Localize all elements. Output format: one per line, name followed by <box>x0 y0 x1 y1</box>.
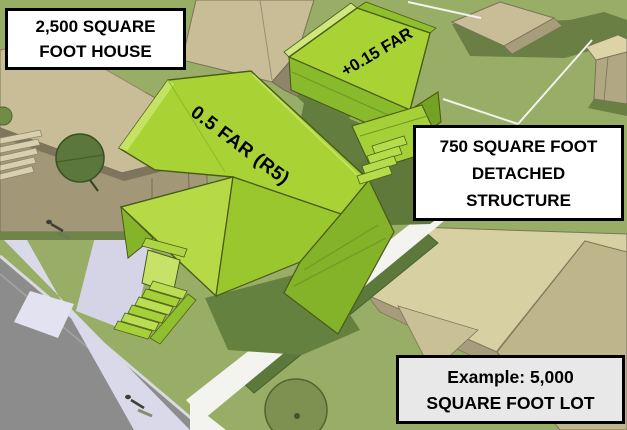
house-callout-line1: 2,500 SQUARE <box>36 14 156 39</box>
neighbor-right-roof <box>594 52 627 104</box>
detached-callout-line2: DETACHED <box>472 160 565 187</box>
far-zoning-diagram: 0.5 FAR (R5) +0.15 FAR 2,500 SQUARE FOOT… <box>0 0 627 430</box>
house-callout-box: 2,500 SQUARE FOOT HOUSE <box>5 8 186 70</box>
house-callout-line2: FOOT HOUSE <box>39 39 151 64</box>
example-callout-line2: SQUARE FOOT LOT <box>426 390 594 416</box>
example-callout-line1: Example: 5,000 <box>447 364 573 390</box>
example-callout-box: Example: 5,000 SQUARE FOOT LOT <box>396 355 625 424</box>
detached-callout-line1: 750 SQUARE FOOT <box>440 133 598 160</box>
detached-callout-line3: STRUCTURE <box>466 187 571 214</box>
detached-callout-box: 750 SQUARE FOOT DETACHED STRUCTURE <box>413 125 624 221</box>
